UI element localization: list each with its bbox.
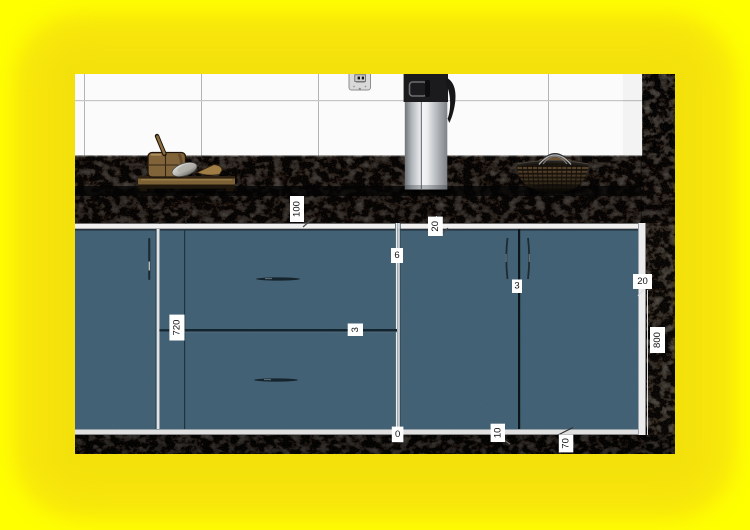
svg-text:20: 20 <box>637 276 648 287</box>
svg-text:10: 10 <box>492 428 503 439</box>
svg-text:100: 100 <box>292 201 303 217</box>
svg-text:720: 720 <box>172 320 183 336</box>
svg-text:6: 6 <box>394 250 399 261</box>
svg-text:0: 0 <box>395 429 400 440</box>
svg-text:70: 70 <box>561 438 572 449</box>
svg-text:3: 3 <box>350 327 361 332</box>
svg-text:3: 3 <box>514 281 519 292</box>
svg-text:20: 20 <box>430 221 441 232</box>
svg-text:800: 800 <box>652 332 663 348</box>
